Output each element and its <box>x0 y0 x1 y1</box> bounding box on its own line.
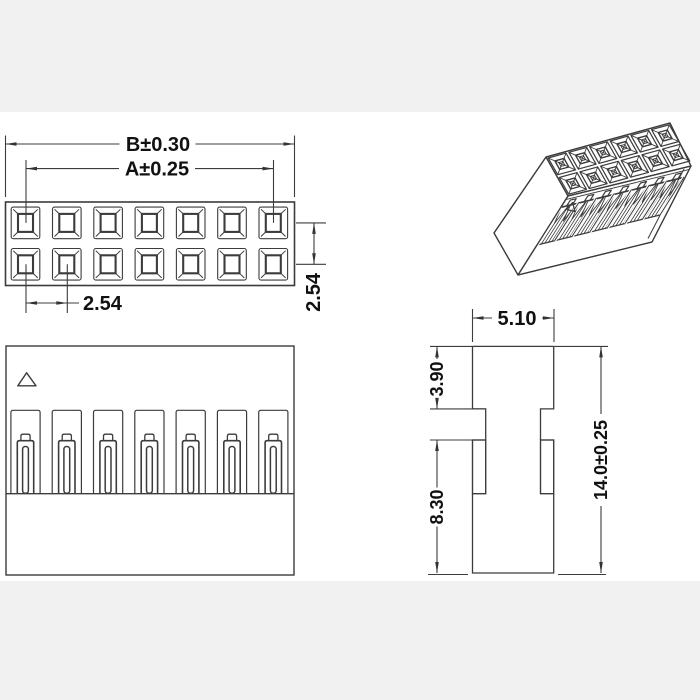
svg-text:14.0±0.25: 14.0±0.25 <box>591 420 611 500</box>
svg-text:5.10: 5.10 <box>498 308 537 330</box>
svg-text:8.30: 8.30 <box>427 489 447 524</box>
svg-text:2.54: 2.54 <box>303 272 325 312</box>
svg-text:2.54: 2.54 <box>83 293 123 315</box>
svg-text:B±0.30: B±0.30 <box>126 134 190 156</box>
svg-text:3.90: 3.90 <box>427 361 447 396</box>
svg-text:A±0.25: A±0.25 <box>125 159 189 181</box>
